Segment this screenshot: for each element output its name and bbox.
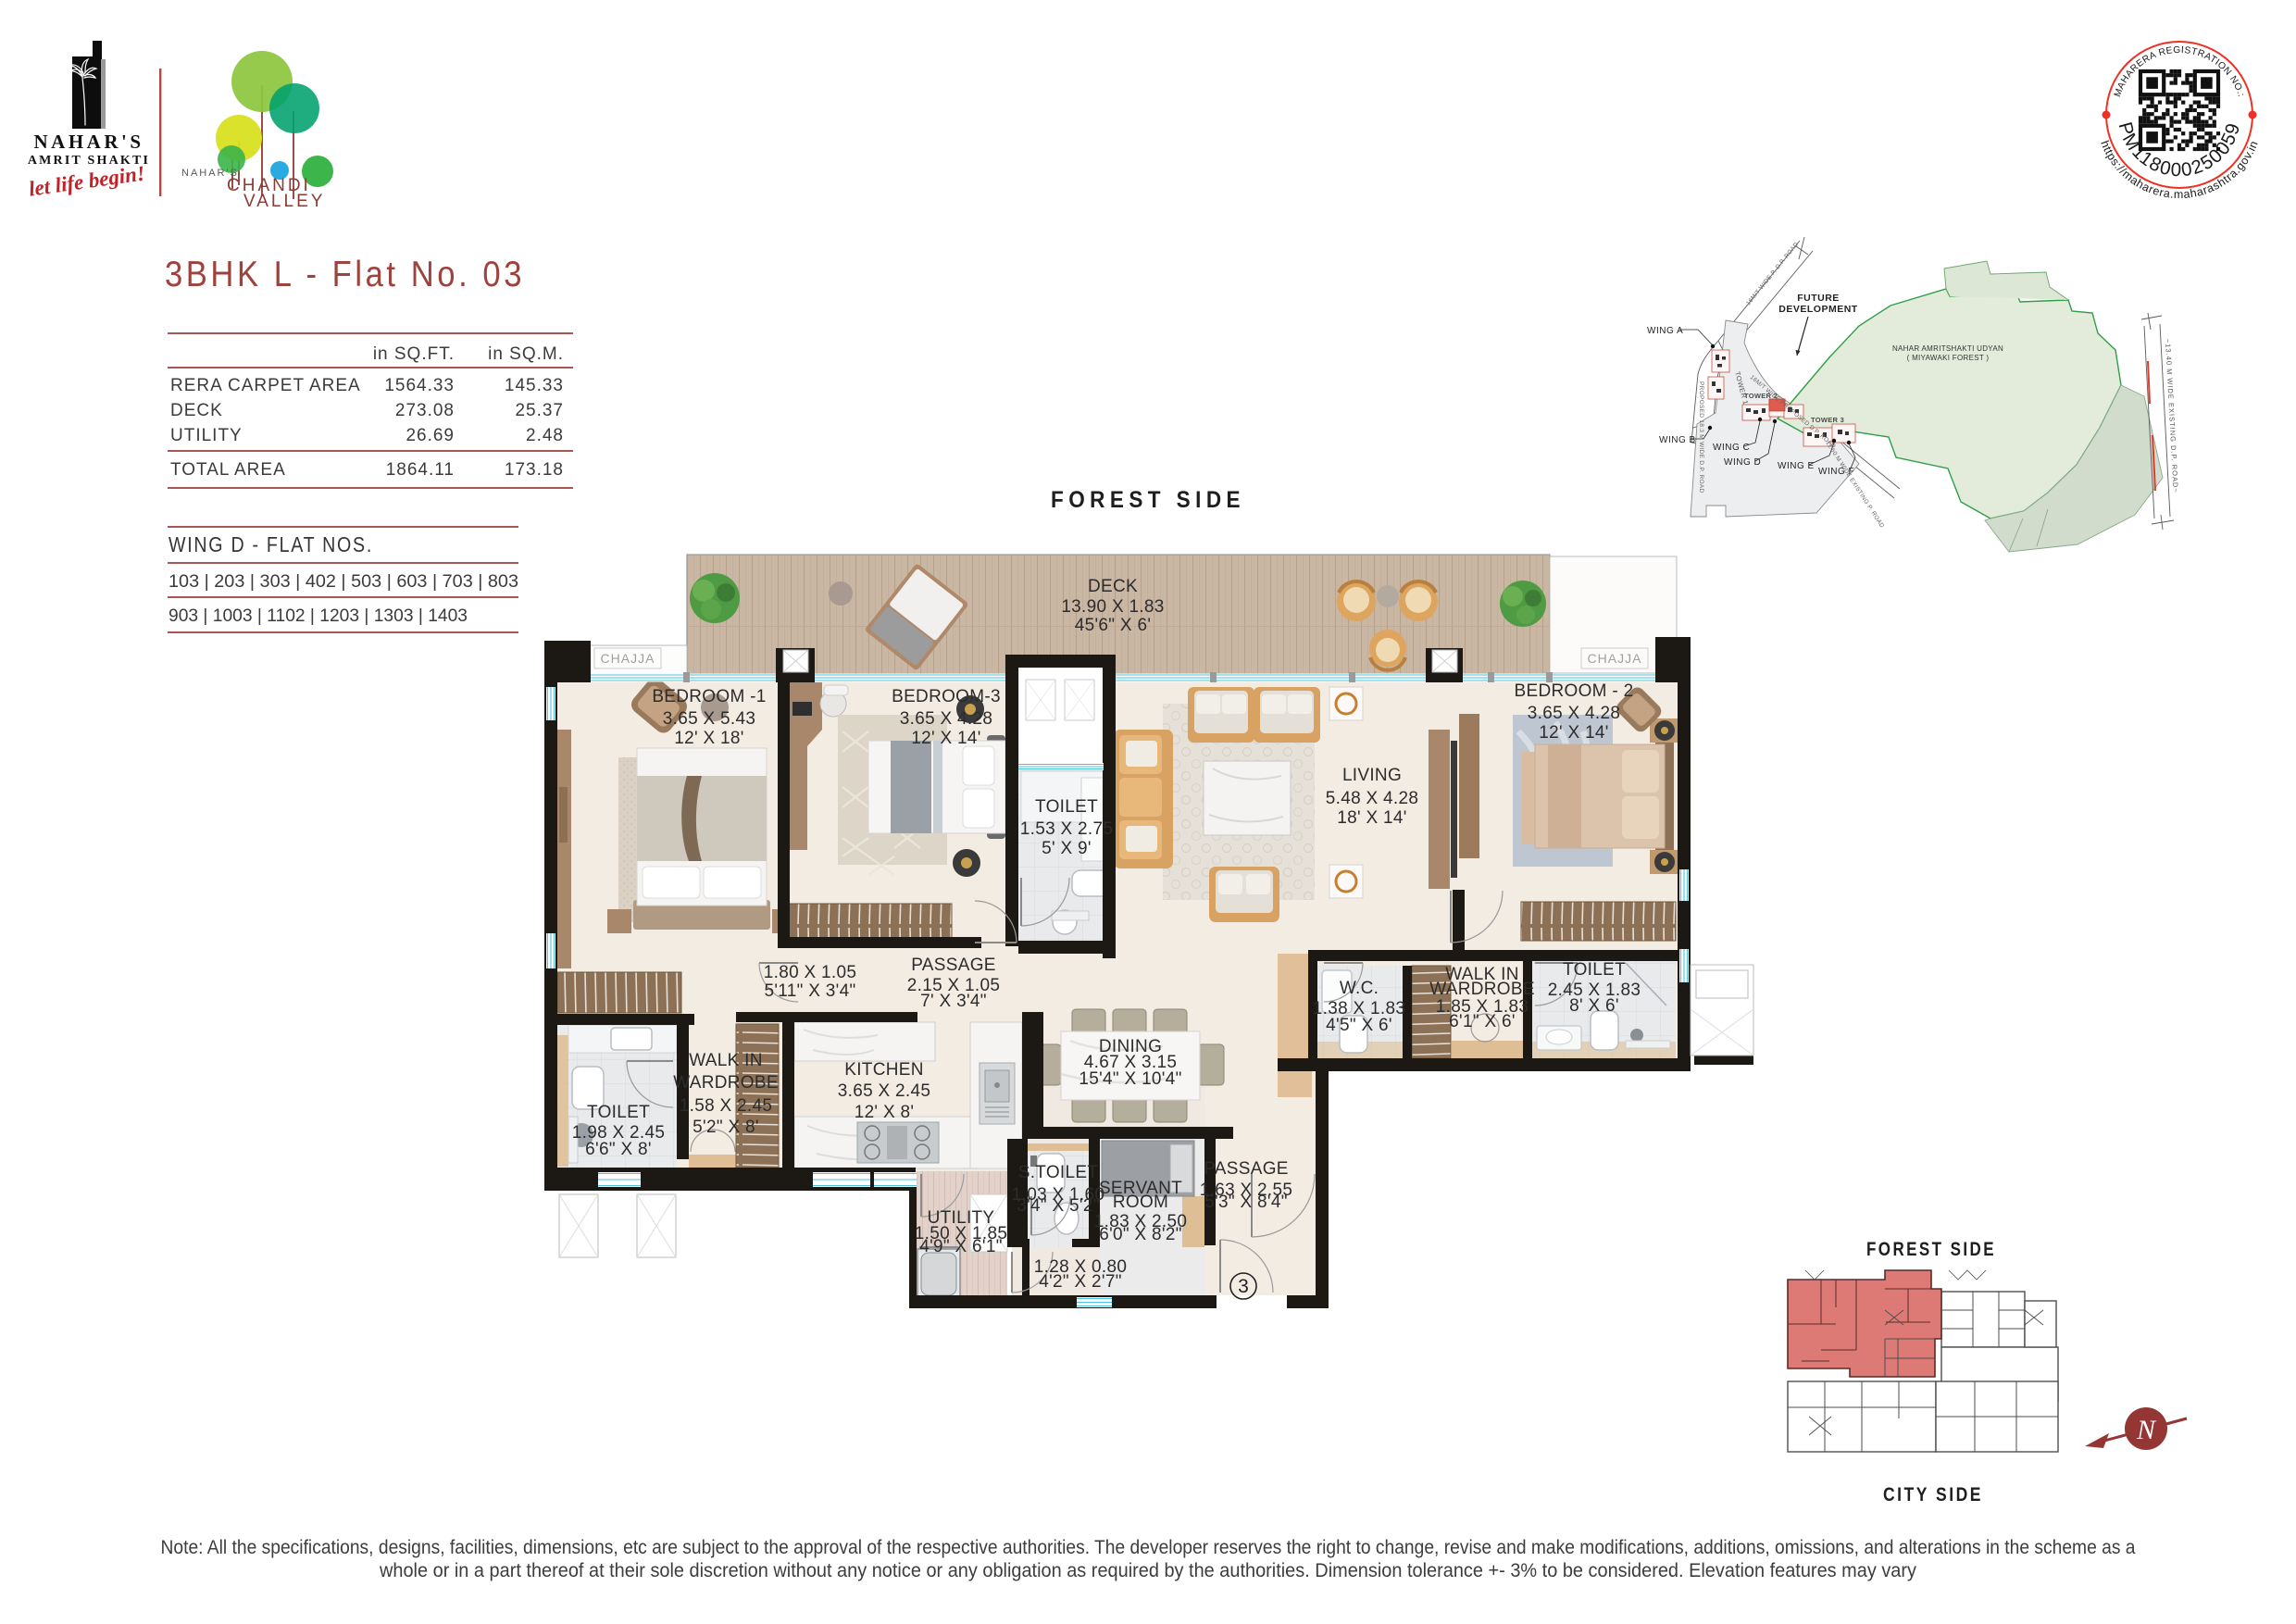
svg-text:LIVING: LIVING	[1342, 766, 1402, 785]
svg-text:45'6" X 6': 45'6" X 6'	[1075, 616, 1152, 635]
svg-text:TOILET: TOILET	[587, 1103, 650, 1122]
svg-text:in SQ.FT.: in SQ.FT.	[373, 344, 455, 364]
svg-text:1.53 X 2.75: 1.53 X 2.75	[1020, 819, 1114, 839]
svg-text:16M/T WIDE P. D.P. ROAD: 16M/T WIDE P. D.P. ROAD	[1745, 242, 1800, 307]
svg-text:DECK: DECK	[1088, 577, 1138, 596]
svg-text:4'5" X 6': 4'5" X 6'	[1326, 1016, 1392, 1035]
svg-text:( MIYAWAKI FOREST ): ( MIYAWAKI FOREST )	[1907, 354, 1990, 362]
svg-text:DECK: DECK	[170, 401, 223, 420]
svg-text:4'2" X 2'7": 4'2" X 2'7"	[1039, 1272, 1122, 1292]
svg-text:4'9" X 6'1": 4'9" X 6'1"	[919, 1237, 1003, 1256]
svg-text:13.90 X 1.83: 13.90 X 1.83	[1061, 597, 1164, 617]
svg-text:Note: All the specifications,: Note: All the specifications, designs, f…	[161, 1536, 2136, 1558]
svg-text:S.TOILET: S.TOILET	[1018, 1163, 1099, 1182]
svg-text:WING D: WING D	[1724, 457, 1761, 468]
svg-text:WING E: WING E	[1778, 461, 1815, 471]
svg-text:903 | 1003 | 1102 | 1203 | 130: 903 | 1003 | 1102 | 1203 | 1303 | 1403	[168, 606, 468, 626]
svg-text:15'4" X 10'4": 15'4" X 10'4"	[1079, 1069, 1181, 1089]
svg-text:7' X 3'4": 7' X 3'4"	[920, 992, 987, 1011]
svg-text:TOWER 3: TOWER 3	[1811, 416, 1844, 424]
svg-text:PASSAGE: PASSAGE	[1204, 1159, 1289, 1179]
svg-text:5'2" X 8': 5'2" X 8'	[693, 1118, 759, 1137]
svg-text:1.58 X 2.45: 1.58 X 2.45	[680, 1096, 773, 1116]
svg-text:12' X 14': 12' X 14'	[911, 729, 980, 748]
svg-text:BEDROOM -1: BEDROOM -1	[652, 687, 766, 706]
svg-text:12' X 18': 12' X 18'	[674, 729, 743, 748]
svg-text:WING C: WING C	[1713, 443, 1750, 453]
svg-text:CHAJJA: CHAJJA	[1588, 651, 1642, 666]
svg-text:W.C.: W.C.	[1340, 979, 1379, 998]
svg-text:VALLEY: VALLEY	[243, 192, 325, 211]
svg-text:1864.11: 1864.11	[386, 460, 455, 480]
svg-text:1.80 X 1.05: 1.80 X 1.05	[764, 963, 857, 982]
svg-text:whole or in a part thereof at: whole or in a part thereof at their sole…	[379, 1559, 1916, 1581]
svg-text:PROPOSED 18.3 M WIDE D.P. ROAD: PROPOSED 18.3 M WIDE D.P. ROAD	[1698, 381, 1704, 493]
svg-text:RERA CARPET AREA: RERA CARPET AREA	[170, 376, 361, 395]
svg-text:CHAJJA: CHAJJA	[601, 651, 655, 666]
svg-text:3: 3	[1238, 1276, 1249, 1297]
svg-text:ROOM: ROOM	[1113, 1193, 1168, 1212]
svg-text:WING A: WING A	[1647, 326, 1683, 336]
svg-text:FUTURE: FUTURE	[1797, 293, 1840, 304]
svg-text:WARDROBE: WARDROBE	[1429, 980, 1535, 999]
svg-text:UTILITY: UTILITY	[170, 426, 243, 445]
svg-text:FOREST SIDE: FOREST SIDE	[1051, 487, 1245, 513]
svg-text:5'11" X 3'4": 5'11" X 3'4"	[765, 981, 856, 1001]
svg-text:CITY SIDE: CITY SIDE	[1883, 1484, 1983, 1505]
svg-text:1564.33: 1564.33	[384, 376, 455, 395]
svg-text:WING B: WING B	[1659, 435, 1696, 445]
svg-text:5' X 9': 5' X 9'	[1042, 839, 1092, 858]
svg-text:DEVELOPMENT: DEVELOPMENT	[1778, 304, 1858, 315]
svg-text:NAHAR'S: NAHAR'S	[33, 131, 143, 153]
svg-text:25.37: 25.37	[515, 401, 564, 420]
svg-text:TOILET: TOILET	[1563, 960, 1626, 980]
svg-text:BEDROOM-3: BEDROOM-3	[892, 687, 1001, 706]
svg-text:TOTAL AREA: TOTAL AREA	[170, 460, 286, 480]
svg-text:KITCHEN: KITCHEN	[844, 1060, 924, 1080]
svg-text:in SQ.M.: in SQ.M.	[488, 344, 564, 364]
svg-text:~13.40 M WIDE EXISTING D.P. RO: ~13.40 M WIDE EXISTING D.P. ROAD~	[2164, 339, 2180, 493]
svg-text:TOILET: TOILET	[1035, 797, 1098, 817]
svg-text:6'0" X 8'2": 6'0" X 8'2"	[1099, 1225, 1182, 1244]
svg-text:BEDROOM - 2: BEDROOM - 2	[1515, 681, 1634, 701]
svg-text:12' X 14': 12' X 14'	[1539, 723, 1608, 743]
svg-text:3'4" X 5'2": 3'4" X 5'2"	[1017, 1196, 1100, 1216]
svg-text:3.65 X 4.28: 3.65 X 4.28	[900, 709, 993, 729]
svg-text:3.65 X 4.28: 3.65 X 4.28	[1528, 704, 1621, 723]
svg-text:3BHK L - Flat No. 03: 3BHK L - Flat No. 03	[165, 255, 525, 294]
svg-text:145.33: 145.33	[505, 376, 564, 395]
svg-text:8' X 6': 8' X 6'	[1569, 996, 1619, 1016]
svg-text:6'6" X 8': 6'6" X 8'	[585, 1140, 652, 1159]
svg-text:NAHAR AMRITSHAKTI UDYAN: NAHAR AMRITSHAKTI UDYAN	[1892, 344, 2003, 353]
svg-text:5'3" X 8'4": 5'3" X 8'4"	[1204, 1193, 1288, 1212]
svg-text:WARDROBE: WARDROBE	[673, 1073, 779, 1093]
svg-text:WALK IN: WALK IN	[689, 1051, 763, 1070]
svg-text:103 | 203 | 303 | 402 | 503 |: 103 | 203 | 303 | 402 | 503 | 603 | 703 …	[168, 572, 518, 592]
svg-text:18' X 14': 18' X 14'	[1337, 808, 1406, 828]
svg-text:PASSAGE: PASSAGE	[911, 956, 996, 975]
svg-text:12' X 8': 12' X 8'	[855, 1103, 915, 1122]
svg-text:6'1" X 6': 6'1" X 6'	[1449, 1012, 1516, 1031]
svg-text:26.69: 26.69	[406, 426, 455, 445]
svg-text:3.65 X 2.45: 3.65 X 2.45	[838, 1081, 931, 1101]
svg-text:FOREST SIDE: FOREST SIDE	[1866, 1239, 1996, 1260]
svg-text:273.08: 273.08	[395, 401, 455, 420]
svg-text:WING D - FLAT NOS.: WING D - FLAT NOS.	[168, 532, 373, 556]
svg-text:2.48: 2.48	[526, 426, 564, 445]
svg-text:5.48 X 4.28: 5.48 X 4.28	[1326, 789, 1419, 808]
svg-text:173.18: 173.18	[505, 460, 564, 480]
svg-text:N: N	[2136, 1415, 2157, 1445]
svg-text:3.65 X 5.43: 3.65 X 5.43	[663, 709, 756, 729]
